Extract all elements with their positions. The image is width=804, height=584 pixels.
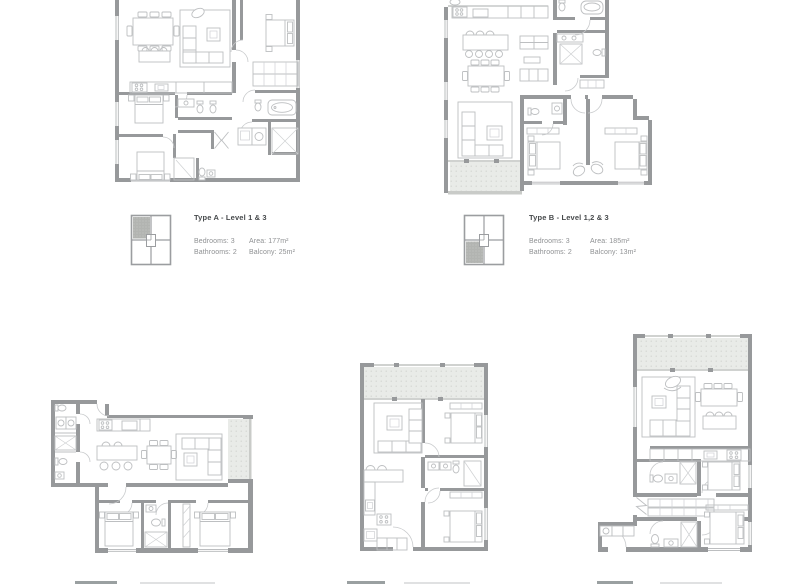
sofa-living: [176, 434, 222, 480]
sofa-living: [374, 403, 422, 453]
legend-b-title: Type B - Level 1,2 & 3: [529, 213, 609, 222]
legend-b-balcony: Balcony: 13m²: [590, 249, 636, 256]
utility-bath: [55, 405, 76, 479]
floorplan-bottom-right: [596, 332, 756, 554]
floorplan-type-b: [443, 0, 655, 196]
floorplan-sheet: Type A - Level 1 & 3 Bedrooms: 3 Bathroo…: [0, 0, 804, 584]
balcony: [364, 363, 484, 401]
floorplan-bottom-left: [48, 398, 256, 554]
kitchen-island: [97, 442, 137, 470]
bed-master: [266, 15, 294, 52]
kitchen-island: [463, 31, 508, 58]
legend-a-bedrooms: Bedrooms: 3: [194, 238, 235, 245]
bathroom-2: [651, 522, 697, 547]
sofa-living: [458, 102, 512, 158]
bedroom-1: [703, 462, 741, 490]
floorplan-bottom-middle: [358, 361, 490, 553]
dining-table: [463, 60, 510, 92]
kitchen: [364, 466, 407, 551]
legend-b-area: Area: 185m²: [590, 238, 630, 245]
ensuite-bath: [178, 99, 216, 113]
dining-table: [142, 441, 177, 470]
bedroom-2: [705, 505, 749, 544]
sofa-living: [642, 374, 695, 437]
wardrobe: [253, 62, 298, 86]
bedroom-2: [588, 99, 647, 175]
sofa-living: [180, 6, 230, 67]
legend-a-bathrooms: Bathrooms: 2: [194, 249, 237, 256]
bathroom-1: [650, 462, 696, 484]
kitchen: [450, 0, 548, 18]
legend-a-title: Type A - Level 1 & 3: [194, 213, 267, 222]
bathtub: [255, 100, 296, 115]
bedroom-bottom: [444, 492, 482, 542]
bed-bottomleft: [131, 152, 216, 180]
entry-cabinets: [600, 526, 634, 536]
keyplan-type-b: [463, 214, 505, 266]
legend-a-area: Area: 177m²: [249, 238, 289, 245]
bathroom: [428, 461, 481, 486]
media-cabinets: [520, 36, 548, 81]
wardrobe: [183, 504, 190, 547]
bedroom-1: [100, 512, 139, 546]
kitchen: [130, 82, 232, 93]
door-arcs: [393, 443, 440, 547]
dining-table: [127, 12, 179, 51]
legend-b-bedrooms: Bedrooms: 3: [529, 238, 570, 245]
legend-b-bathrooms: Bathrooms: 2: [529, 249, 572, 256]
balcony: [448, 159, 522, 195]
dining-table: [696, 384, 743, 430]
legend-a-balcony: Balcony: 25m²: [249, 249, 295, 256]
bathroom: [145, 505, 167, 547]
kitchen: [97, 419, 150, 431]
keyplan-type-a: [130, 214, 172, 266]
bedroom-2: [195, 512, 236, 546]
balcony: [228, 419, 252, 479]
bedroom-top: [445, 403, 482, 443]
floorplan-type-a: [85, 0, 300, 186]
balcony: [637, 334, 748, 372]
bed-midleft: [129, 95, 170, 123]
